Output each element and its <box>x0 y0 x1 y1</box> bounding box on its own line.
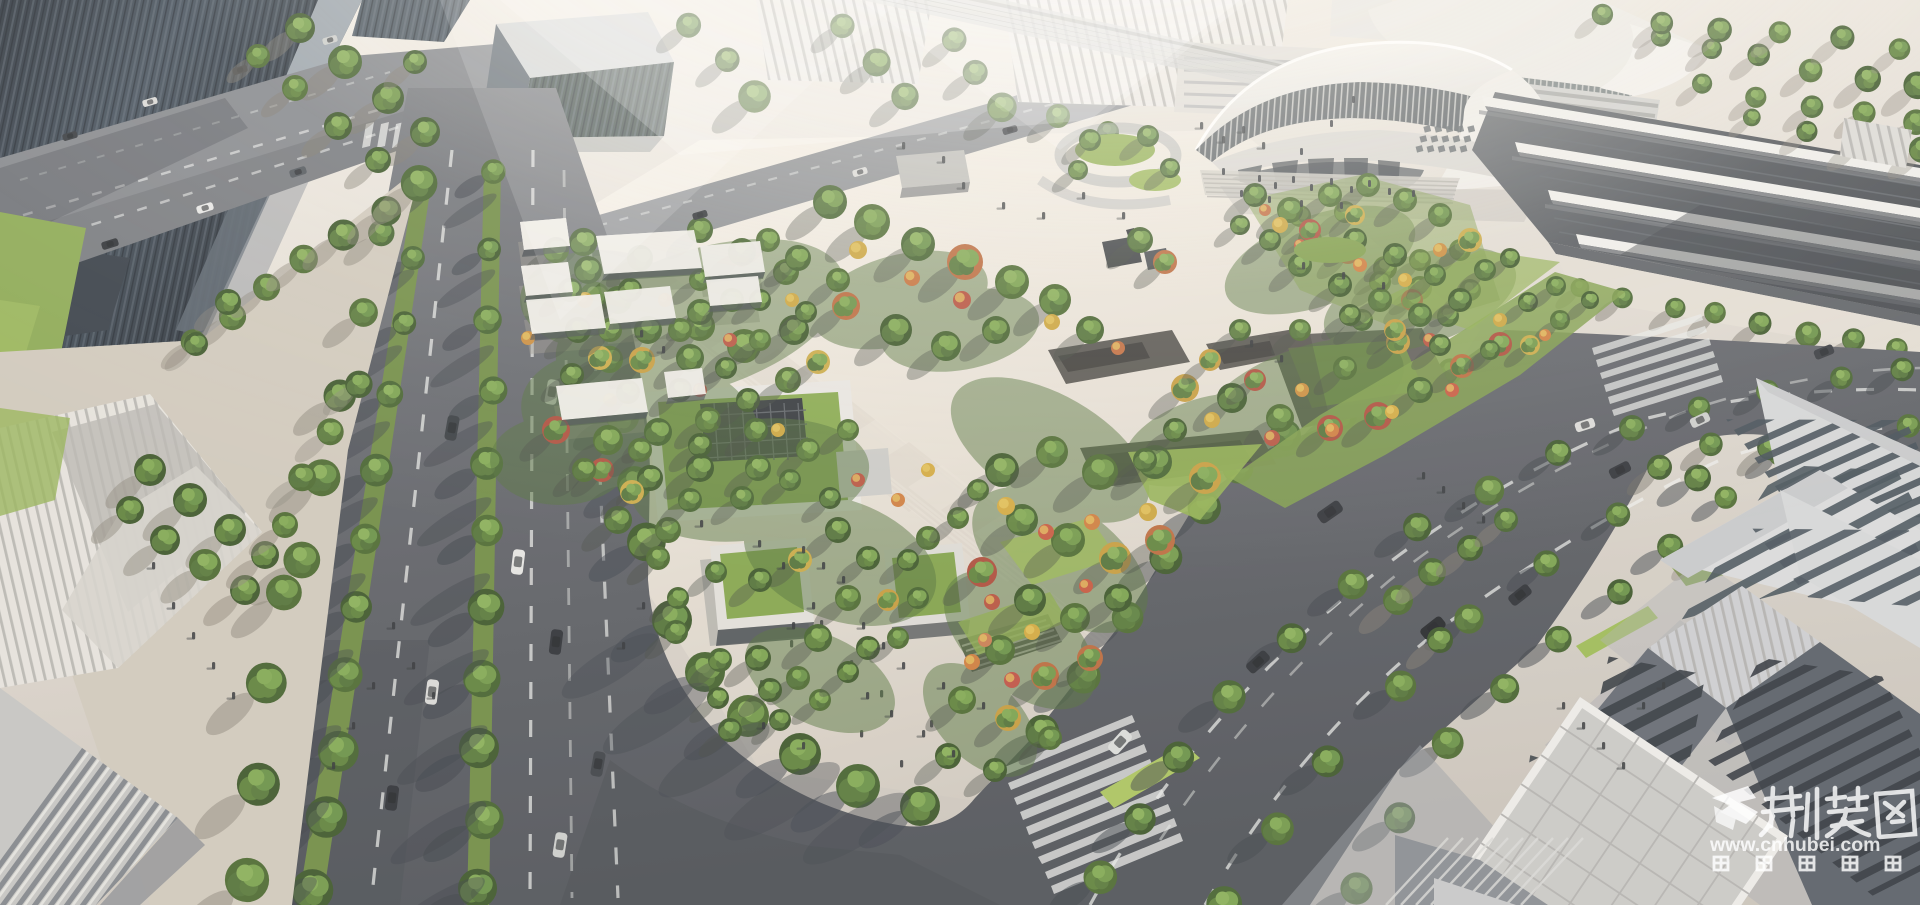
svg-text:www.cnhubei.com: www.cnhubei.com <box>1709 834 1880 856</box>
